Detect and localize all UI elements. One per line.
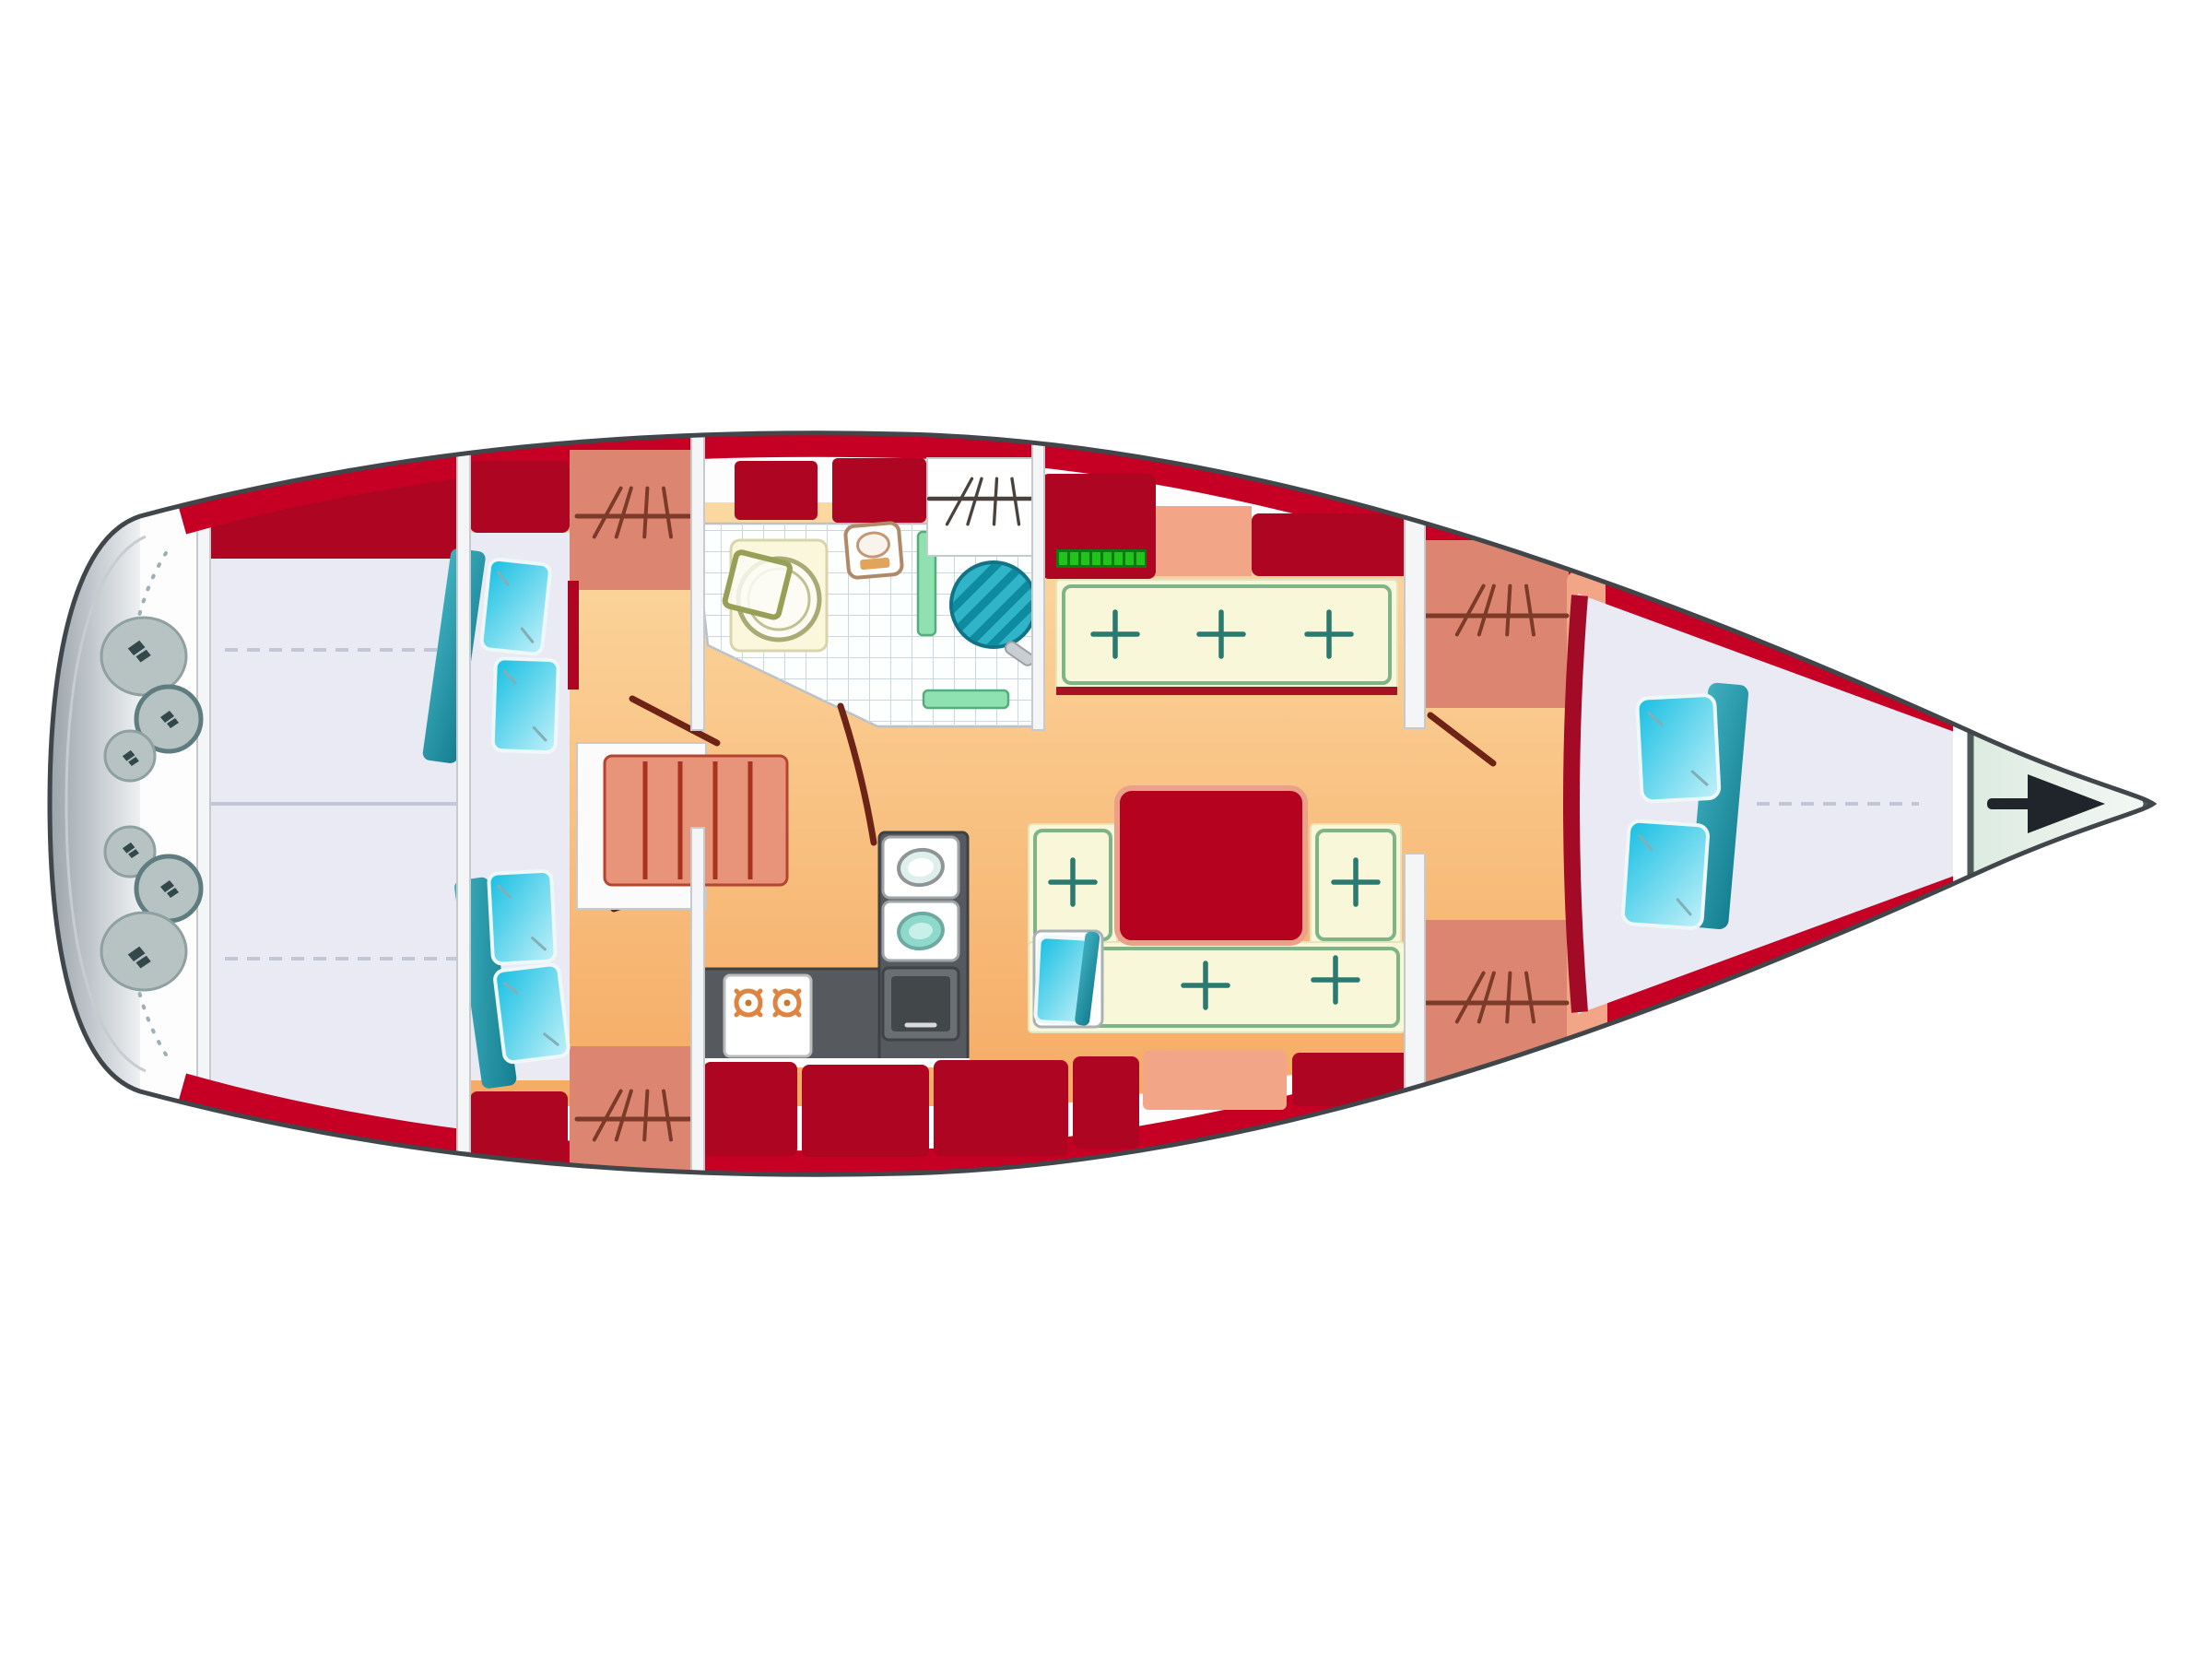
louver-locker <box>927 458 1041 556</box>
forward-bulkhead <box>1405 498 1425 728</box>
salon-dinette <box>1029 788 1405 1032</box>
v-berth-pillow <box>1637 695 1720 802</box>
salon-table <box>1117 788 1305 943</box>
floorplan-drawing <box>0 0 2212 1662</box>
yacht-floorplan <box>0 0 2212 1662</box>
stove-burner <box>736 991 760 1015</box>
berth-shelf <box>570 450 691 590</box>
settee-lip <box>1056 687 1397 695</box>
companionway <box>577 743 787 909</box>
galley-sink <box>883 837 959 898</box>
galley-aft-wall <box>691 828 704 1215</box>
v-berth-headboard <box>1571 595 1580 1012</box>
head-forward-wall <box>1032 442 1044 730</box>
berth-pillow <box>494 963 570 1063</box>
head-aft-wall <box>691 426 704 730</box>
stove-burner <box>775 991 799 1015</box>
berth-pillow <box>493 658 559 752</box>
forward-bulkhead <box>1405 854 1425 1095</box>
head-counter-strip <box>924 690 1008 708</box>
cabin-locker <box>470 461 570 533</box>
aft-bulkhead <box>457 433 470 1152</box>
dinette-cyan-seat <box>1034 931 1102 1027</box>
shower-door <box>724 551 791 619</box>
helm-wall <box>197 466 210 1141</box>
berth-pillow <box>481 559 551 654</box>
head-locker <box>832 458 926 523</box>
interior-layout <box>50 426 2147 1215</box>
berth-pillow <box>488 870 556 963</box>
side-shelf <box>1425 540 1569 708</box>
head-locker <box>735 461 818 520</box>
galley-sink <box>883 902 959 961</box>
wall-accent <box>568 581 579 690</box>
oven <box>883 968 959 1040</box>
settee-back-cushion <box>1252 513 1410 576</box>
louver-vent <box>1056 549 1147 568</box>
starboard-hull-cushions <box>703 1051 1416 1157</box>
v-berth-pillow <box>1622 820 1709 929</box>
toilet <box>845 523 903 579</box>
settee-back-shelf <box>1156 506 1252 576</box>
shower <box>724 540 827 651</box>
